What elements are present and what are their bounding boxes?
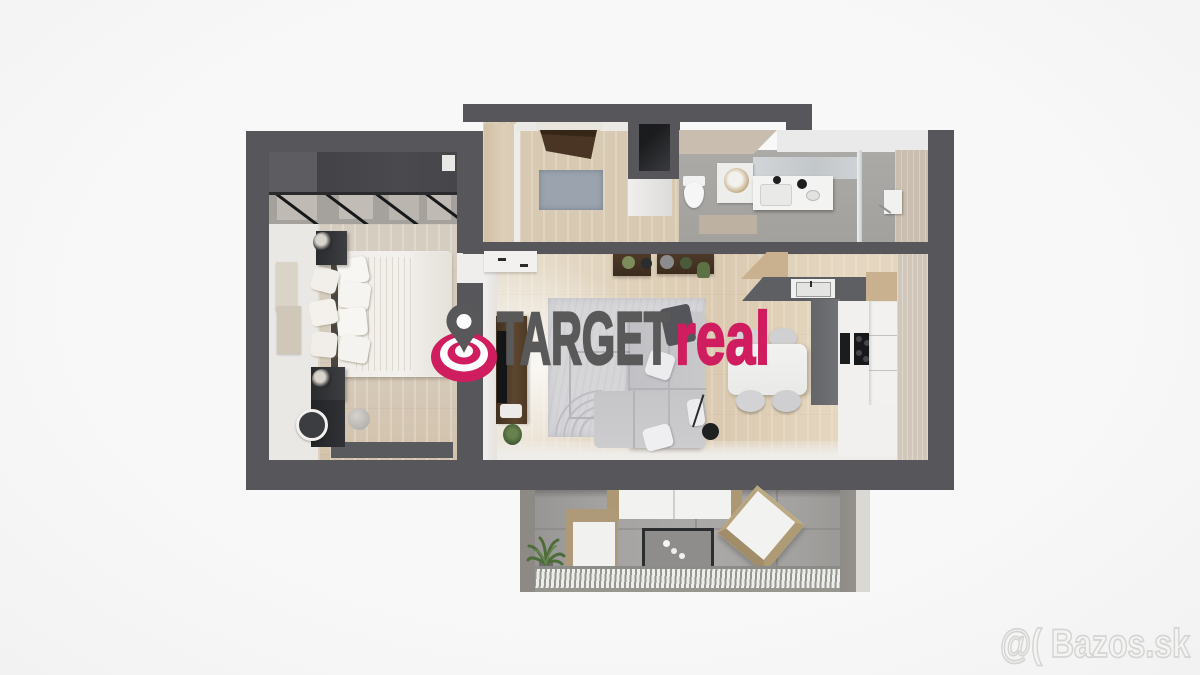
svg-text:TARGET: TARGET: [497, 297, 670, 380]
svg-text:@( Bazos.sk: @( Bazos.sk: [1000, 622, 1191, 666]
svg-text:real: real: [675, 297, 770, 380]
